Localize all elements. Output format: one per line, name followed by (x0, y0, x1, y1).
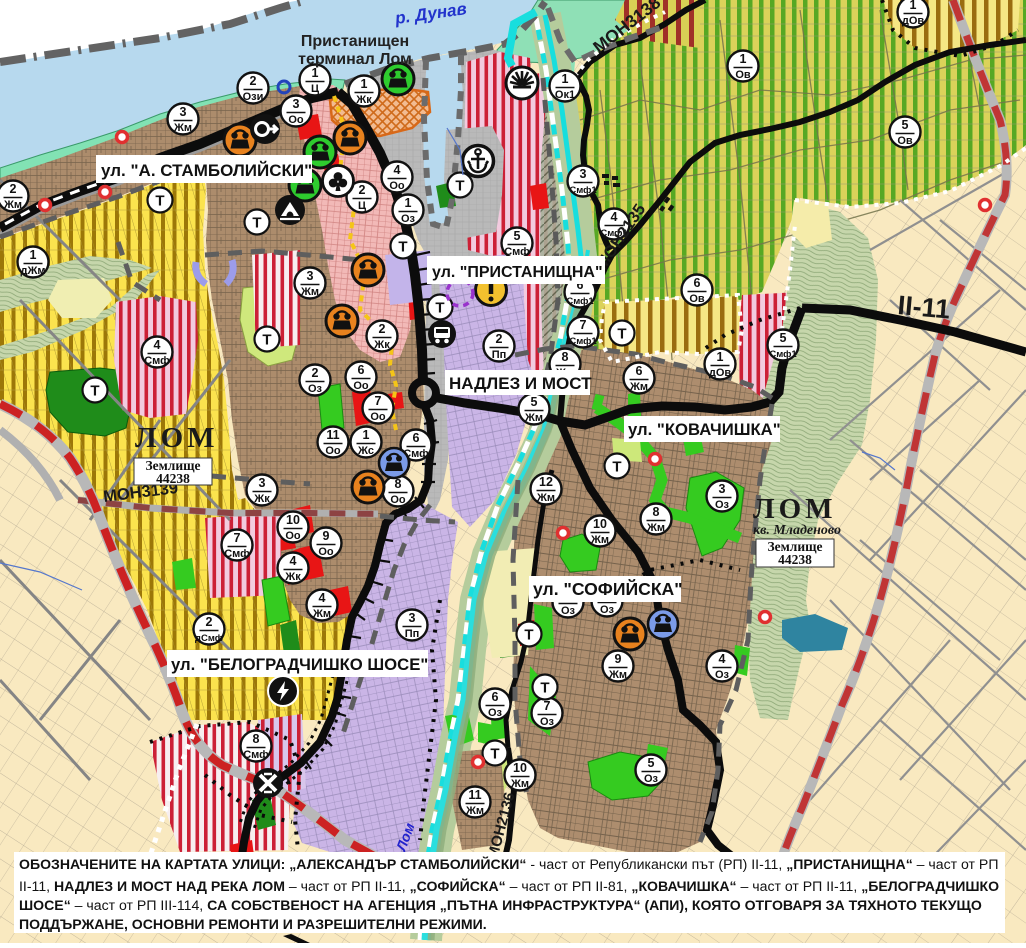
svg-text:3: 3 (580, 167, 587, 181)
svg-text:Ц: Ц (358, 200, 366, 212)
svg-text:Т: Т (490, 746, 499, 763)
svg-text:1: 1 (312, 66, 319, 80)
svg-text:4: 4 (290, 554, 297, 568)
svg-text:ул. "ПРИСТАНИЩНА": ул. "ПРИСТАНИЩНА" (432, 264, 603, 281)
svg-text:ул. "БЕЛОГРАДЧИШКО ШОСЕ": ул. "БЕЛОГРАДЧИШКО ШОСЕ" (171, 655, 428, 674)
svg-text:ЛОМ: ЛОМ (135, 422, 219, 454)
svg-text:Смф: Смф (243, 749, 269, 761)
svg-text:Т: Т (155, 193, 164, 210)
svg-text:Т: Т (612, 459, 621, 476)
svg-text:9: 9 (615, 652, 622, 666)
svg-text:4: 4 (611, 210, 618, 224)
svg-text:Ози: Ози (243, 91, 264, 103)
svg-text:терминал Лом: терминал Лом (298, 51, 412, 68)
svg-text:Ок1: Ок1 (555, 89, 575, 101)
svg-text:ЛОМ: ЛОМ (753, 493, 837, 525)
svg-text:2: 2 (496, 332, 503, 346)
svg-text:5: 5 (780, 331, 787, 345)
svg-text:2: 2 (312, 366, 319, 380)
svg-text:Жс: Жс (357, 445, 374, 457)
svg-text:II-11: II-11 (896, 290, 951, 324)
svg-text:II-11, НАДЛЕЗ И МОСТ НАД РЕКА: II-11, НАДЛЕЗ И МОСТ НАД РЕКА ЛОМ – част… (19, 877, 999, 894)
svg-text:3: 3 (307, 269, 314, 283)
svg-text:1: 1 (30, 248, 37, 262)
svg-text:ул. "А. СТАМБОЛИЙСКИ": ул. "А. СТАМБОЛИЙСКИ" (101, 161, 312, 180)
svg-text:Жм: Жм (312, 608, 331, 620)
svg-text:дСмф: дСмф (195, 633, 223, 644)
svg-text:7: 7 (580, 318, 587, 332)
svg-text:4: 4 (394, 163, 401, 177)
svg-text:2: 2 (10, 182, 17, 196)
svg-text:Т: Т (455, 178, 464, 195)
svg-text:Т: Т (398, 239, 407, 256)
svg-text:7: 7 (234, 531, 241, 545)
svg-text:2: 2 (359, 183, 366, 197)
svg-text:Смф1: Смф1 (569, 185, 597, 196)
svg-text:ул. "СОФИЙСКА": ул. "СОФИЙСКА" (533, 578, 683, 599)
svg-text:Жм: Жм (524, 412, 543, 424)
svg-text:6: 6 (694, 276, 701, 290)
svg-text:Оо: Оо (325, 445, 341, 457)
svg-text:4: 4 (319, 591, 326, 605)
svg-text:Ц: Ц (311, 83, 319, 95)
svg-text:10: 10 (593, 517, 607, 531)
svg-text:Оо: Оо (318, 546, 334, 558)
svg-text:6: 6 (413, 431, 420, 445)
svg-text:Пристанищен: Пристанищен (301, 33, 409, 50)
svg-text:Оо: Оо (288, 114, 304, 126)
svg-text:Оо: Оо (353, 380, 369, 392)
svg-text:Пп: Пп (405, 628, 420, 640)
svg-text:7: 7 (544, 699, 551, 713)
svg-text:8: 8 (253, 732, 260, 746)
svg-text:Т: Т (435, 300, 444, 317)
svg-text:1: 1 (562, 72, 569, 86)
svg-text:Смф1: Смф1 (569, 336, 597, 347)
svg-text:Т: Т (262, 332, 271, 349)
svg-text:5: 5 (514, 229, 521, 243)
svg-text:Ов: Ов (689, 293, 705, 305)
svg-text:3: 3 (180, 105, 187, 119)
svg-text:Жк: Жк (253, 493, 270, 505)
svg-text:2: 2 (379, 322, 386, 336)
svg-text:Т: Т (90, 383, 99, 400)
svg-text:7: 7 (375, 394, 382, 408)
svg-text:Смф: Смф (144, 355, 170, 367)
svg-text:6: 6 (636, 364, 643, 378)
svg-text:Оз: Оз (540, 716, 555, 728)
svg-text:Жм: Жм (646, 522, 665, 534)
svg-text:ПОДДЪРЖАНЕ, ОСНОВНИ РЕМОНТИ И: ПОДДЪРЖАНЕ, ОСНОВНИ РЕМОНТИ И РАЗРЕШИТЕЛ… (19, 916, 487, 932)
svg-text:3: 3 (719, 482, 726, 496)
svg-text:Жм: Жм (300, 286, 319, 298)
svg-text:11: 11 (468, 788, 481, 802)
svg-text:Оо: Оо (285, 530, 301, 542)
svg-text:5: 5 (648, 756, 655, 770)
svg-text:Смф: Смф (224, 548, 250, 560)
svg-text:Оз: Оз (715, 669, 730, 681)
svg-text:НАДЛЕЗ И МОСТ: НАДЛЕЗ И МОСТ (449, 374, 592, 393)
svg-text:10: 10 (513, 761, 527, 775)
svg-text:Оо: Оо (370, 411, 386, 423)
svg-text:1: 1 (717, 350, 724, 364)
svg-text:5: 5 (531, 395, 538, 409)
svg-text:11: 11 (326, 428, 339, 442)
svg-text:дОв: дОв (709, 367, 732, 379)
svg-text:6: 6 (358, 363, 365, 377)
svg-text:1: 1 (361, 77, 368, 91)
svg-text:Жм: Жм (510, 778, 529, 790)
svg-text:9: 9 (323, 529, 330, 543)
svg-text:Т: Т (540, 680, 549, 697)
svg-text:Оз: Оз (715, 499, 730, 511)
svg-text:Жм: Жм (629, 381, 648, 393)
svg-text:Ов: Ов (897, 135, 913, 147)
svg-text:Оз: Оз (401, 213, 416, 225)
svg-text:Т: Т (524, 627, 533, 644)
svg-text:Жм: Жм (465, 805, 484, 817)
svg-text:1: 1 (740, 52, 747, 66)
svg-text:Ов: Ов (735, 69, 751, 81)
svg-text:Оз: Оз (308, 383, 323, 395)
svg-text:Оо: Оо (390, 494, 406, 506)
svg-text:1: 1 (363, 428, 370, 442)
svg-text:3: 3 (259, 476, 266, 490)
svg-text:ШОСЕ“ – част от РП III-114, СА: ШОСЕ“ – част от РП III-114, СА СОБСТВЕНО… (19, 897, 982, 913)
svg-text:Жм: Жм (3, 199, 22, 211)
svg-text:Жм: Жм (590, 534, 609, 546)
svg-text:44238: 44238 (778, 552, 812, 567)
svg-text:Жк: Жк (355, 94, 372, 106)
svg-text:кв. Младеново: кв. Младеново (753, 523, 841, 538)
svg-text:Смф1: Смф1 (769, 349, 797, 360)
svg-text:Т: Т (617, 326, 626, 343)
svg-text:Пп: Пп (492, 349, 507, 361)
svg-text:10: 10 (286, 513, 300, 527)
svg-text:дЖм: дЖм (20, 265, 45, 277)
svg-text:5: 5 (902, 118, 909, 132)
svg-text:3: 3 (409, 611, 416, 625)
svg-text:8: 8 (562, 350, 569, 364)
svg-text:4: 4 (719, 652, 726, 666)
svg-text:2: 2 (206, 615, 213, 629)
svg-text:12: 12 (539, 475, 553, 489)
svg-text:Т: Т (252, 215, 261, 232)
svg-text:ОБОЗНАЧЕНИТЕ НА КАРТАТА УЛИЦИ:: ОБОЗНАЧЕНИТЕ НА КАРТАТА УЛИЦИ: „АЛЕКСАНД… (19, 855, 998, 872)
svg-text:Жк: Жк (373, 339, 390, 351)
svg-text:ул. "КОВАЧИШКА": ул. "КОВАЧИШКА" (628, 420, 781, 439)
svg-text:Оо: Оо (389, 180, 405, 192)
svg-text:Оз: Оз (561, 605, 576, 617)
svg-text:6: 6 (492, 690, 499, 704)
svg-text:Смф1: Смф1 (566, 296, 594, 307)
svg-text:44238: 44238 (156, 471, 190, 486)
svg-text:2: 2 (250, 74, 257, 88)
svg-text:1: 1 (405, 196, 412, 210)
svg-text:Жм: Жм (173, 122, 192, 134)
svg-text:8: 8 (653, 505, 660, 519)
svg-text:Жм: Жм (608, 669, 627, 681)
svg-text:Жм: Жм (536, 492, 555, 504)
svg-text:Оз: Оз (488, 707, 503, 719)
svg-text:Жк: Жк (284, 571, 301, 583)
svg-text:4: 4 (154, 338, 161, 352)
svg-text:дОв: дОв (902, 15, 925, 27)
svg-text:Оз: Оз (644, 773, 659, 785)
svg-text:3: 3 (293, 97, 300, 111)
svg-text:1: 1 (910, 0, 917, 12)
svg-text:Оз: Оз (600, 604, 615, 616)
